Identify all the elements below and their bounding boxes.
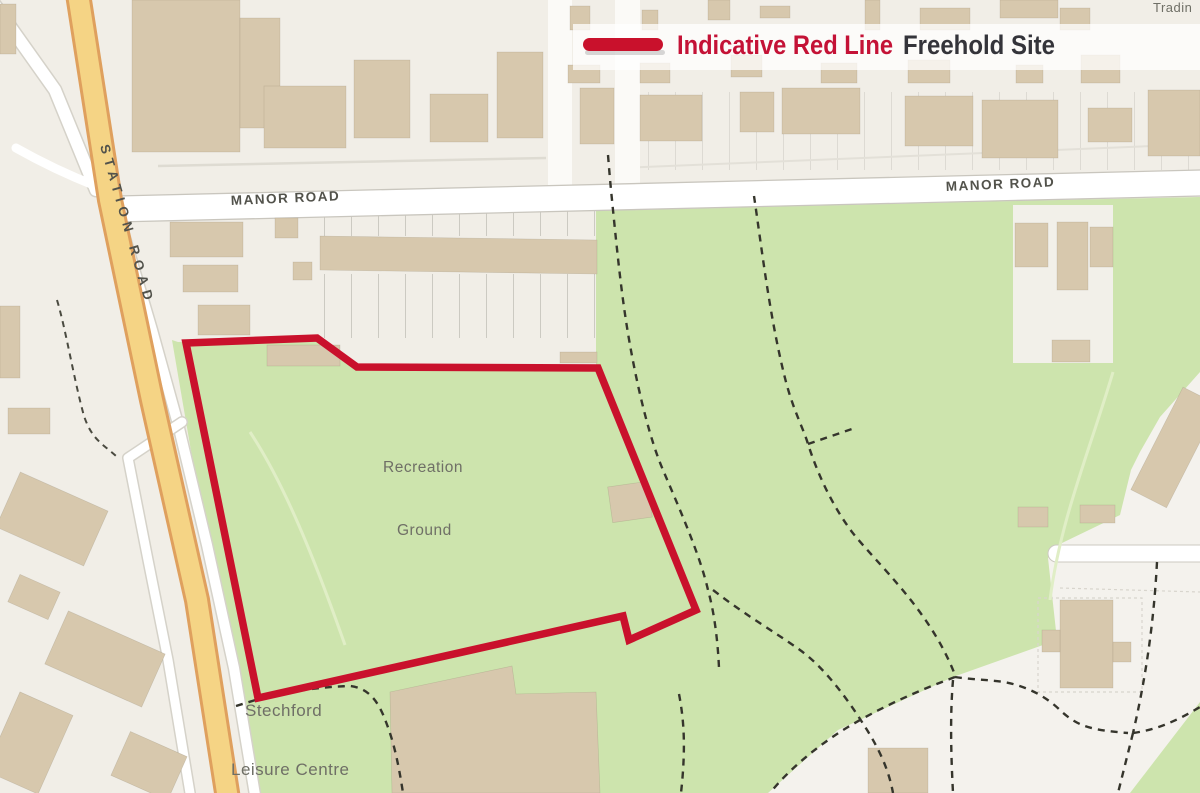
leisure-centre-label: Leisure Centre [231,760,350,779]
legend-red-line-label: Indicative Red Line [677,30,893,60]
minor-road [548,0,572,198]
ground-label: Ground [397,522,452,539]
legend-freehold-site-label: Freehold Site [903,30,1055,60]
trading-estate-label: Tradin [1153,0,1192,15]
stechford-label: Stechford [245,701,322,720]
legend: Indicative Red Line Freehold Site [573,24,1200,70]
cul-de-sac-road [1048,545,1200,562]
recreation-label: Recreation [383,459,463,476]
legend-red-line-swatch [583,38,663,51]
map-canvas: STATION ROAD MANOR ROAD MANOR ROAD Recre… [0,0,1200,793]
map: STATION ROAD MANOR ROAD MANOR ROAD Recre… [0,0,1200,793]
terrace-row [320,236,597,274]
